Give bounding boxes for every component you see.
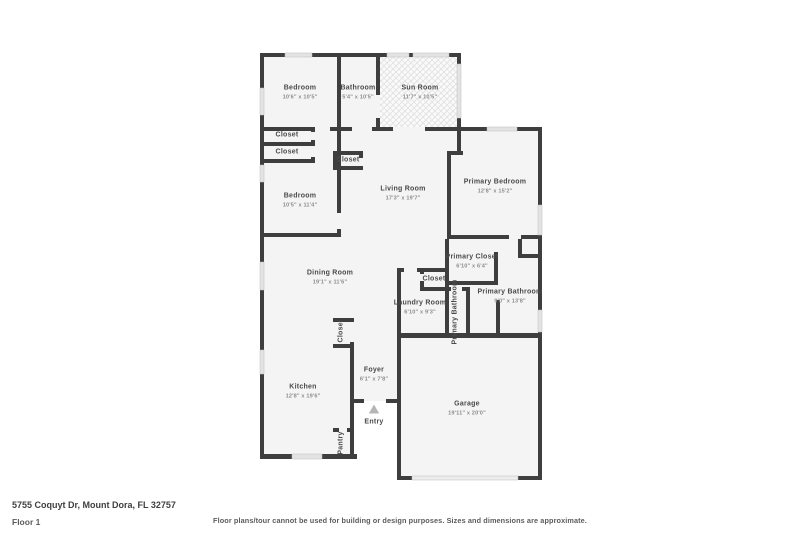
wall-segment xyxy=(397,268,401,480)
wall-segment xyxy=(447,151,451,239)
window xyxy=(260,165,264,182)
floorplan-canvas xyxy=(0,0,800,533)
wall-segment xyxy=(445,287,449,338)
window xyxy=(413,53,449,57)
window xyxy=(292,454,322,459)
wall-segment xyxy=(260,127,312,131)
wall-segment xyxy=(376,57,380,95)
wall-segment xyxy=(260,142,315,146)
window xyxy=(387,53,409,57)
wall-segment xyxy=(333,428,339,432)
wall-segment xyxy=(311,140,315,146)
floorplan-page: Bedroom10'6" x 10'5"Bathroom5'4" x 10'5"… xyxy=(0,0,800,533)
wall-segment xyxy=(466,287,470,338)
wall-segment xyxy=(376,118,380,131)
wall-segment xyxy=(311,127,315,132)
wall-segment xyxy=(260,159,315,163)
wall-segment xyxy=(311,157,315,163)
room-floor xyxy=(399,333,538,478)
wall-segment xyxy=(337,131,341,213)
wall-segment xyxy=(333,151,337,170)
wall-segment xyxy=(518,239,522,258)
wall-segment xyxy=(494,252,498,281)
wall-segment xyxy=(449,281,498,285)
sunroom-hatch-floor xyxy=(380,57,457,127)
room-floor xyxy=(352,237,399,401)
wall-segment xyxy=(350,318,354,322)
wall-segment xyxy=(350,342,354,459)
window xyxy=(285,53,312,57)
garage-door xyxy=(412,476,518,480)
wall-segment xyxy=(330,127,352,131)
window xyxy=(538,205,542,235)
footer-address: 5755 Coquyt Dr, Mount Dora, FL 32757 xyxy=(12,500,176,510)
entry-arrow-icon xyxy=(369,405,379,414)
window xyxy=(260,262,264,290)
wall-segment xyxy=(457,131,461,155)
window xyxy=(457,64,461,118)
wall-segment xyxy=(420,268,424,274)
wall-segment xyxy=(445,239,449,287)
wall-segment xyxy=(337,229,341,237)
window xyxy=(538,310,542,332)
window xyxy=(260,88,264,115)
footer-disclaimer: Floor plans/tour cannot be used for buil… xyxy=(0,516,800,525)
window xyxy=(487,127,517,131)
wall-segment xyxy=(496,300,500,338)
window xyxy=(260,350,264,374)
wall-segment xyxy=(447,235,509,239)
wall-segment xyxy=(425,127,542,131)
wall-segment xyxy=(420,281,424,287)
wall-segment xyxy=(359,151,363,158)
wall-segment xyxy=(337,57,341,127)
wall-segment xyxy=(260,233,341,237)
wall-segment xyxy=(372,127,393,131)
wall-segment xyxy=(538,129,542,480)
